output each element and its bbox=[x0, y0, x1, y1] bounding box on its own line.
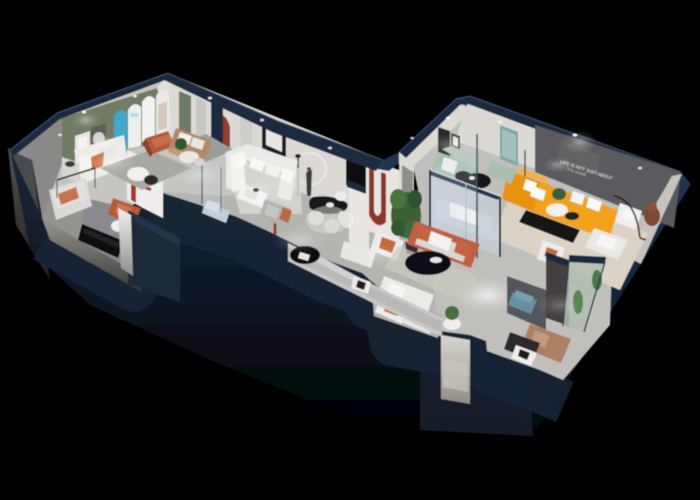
svg-text:999: 999 bbox=[130, 113, 139, 119]
